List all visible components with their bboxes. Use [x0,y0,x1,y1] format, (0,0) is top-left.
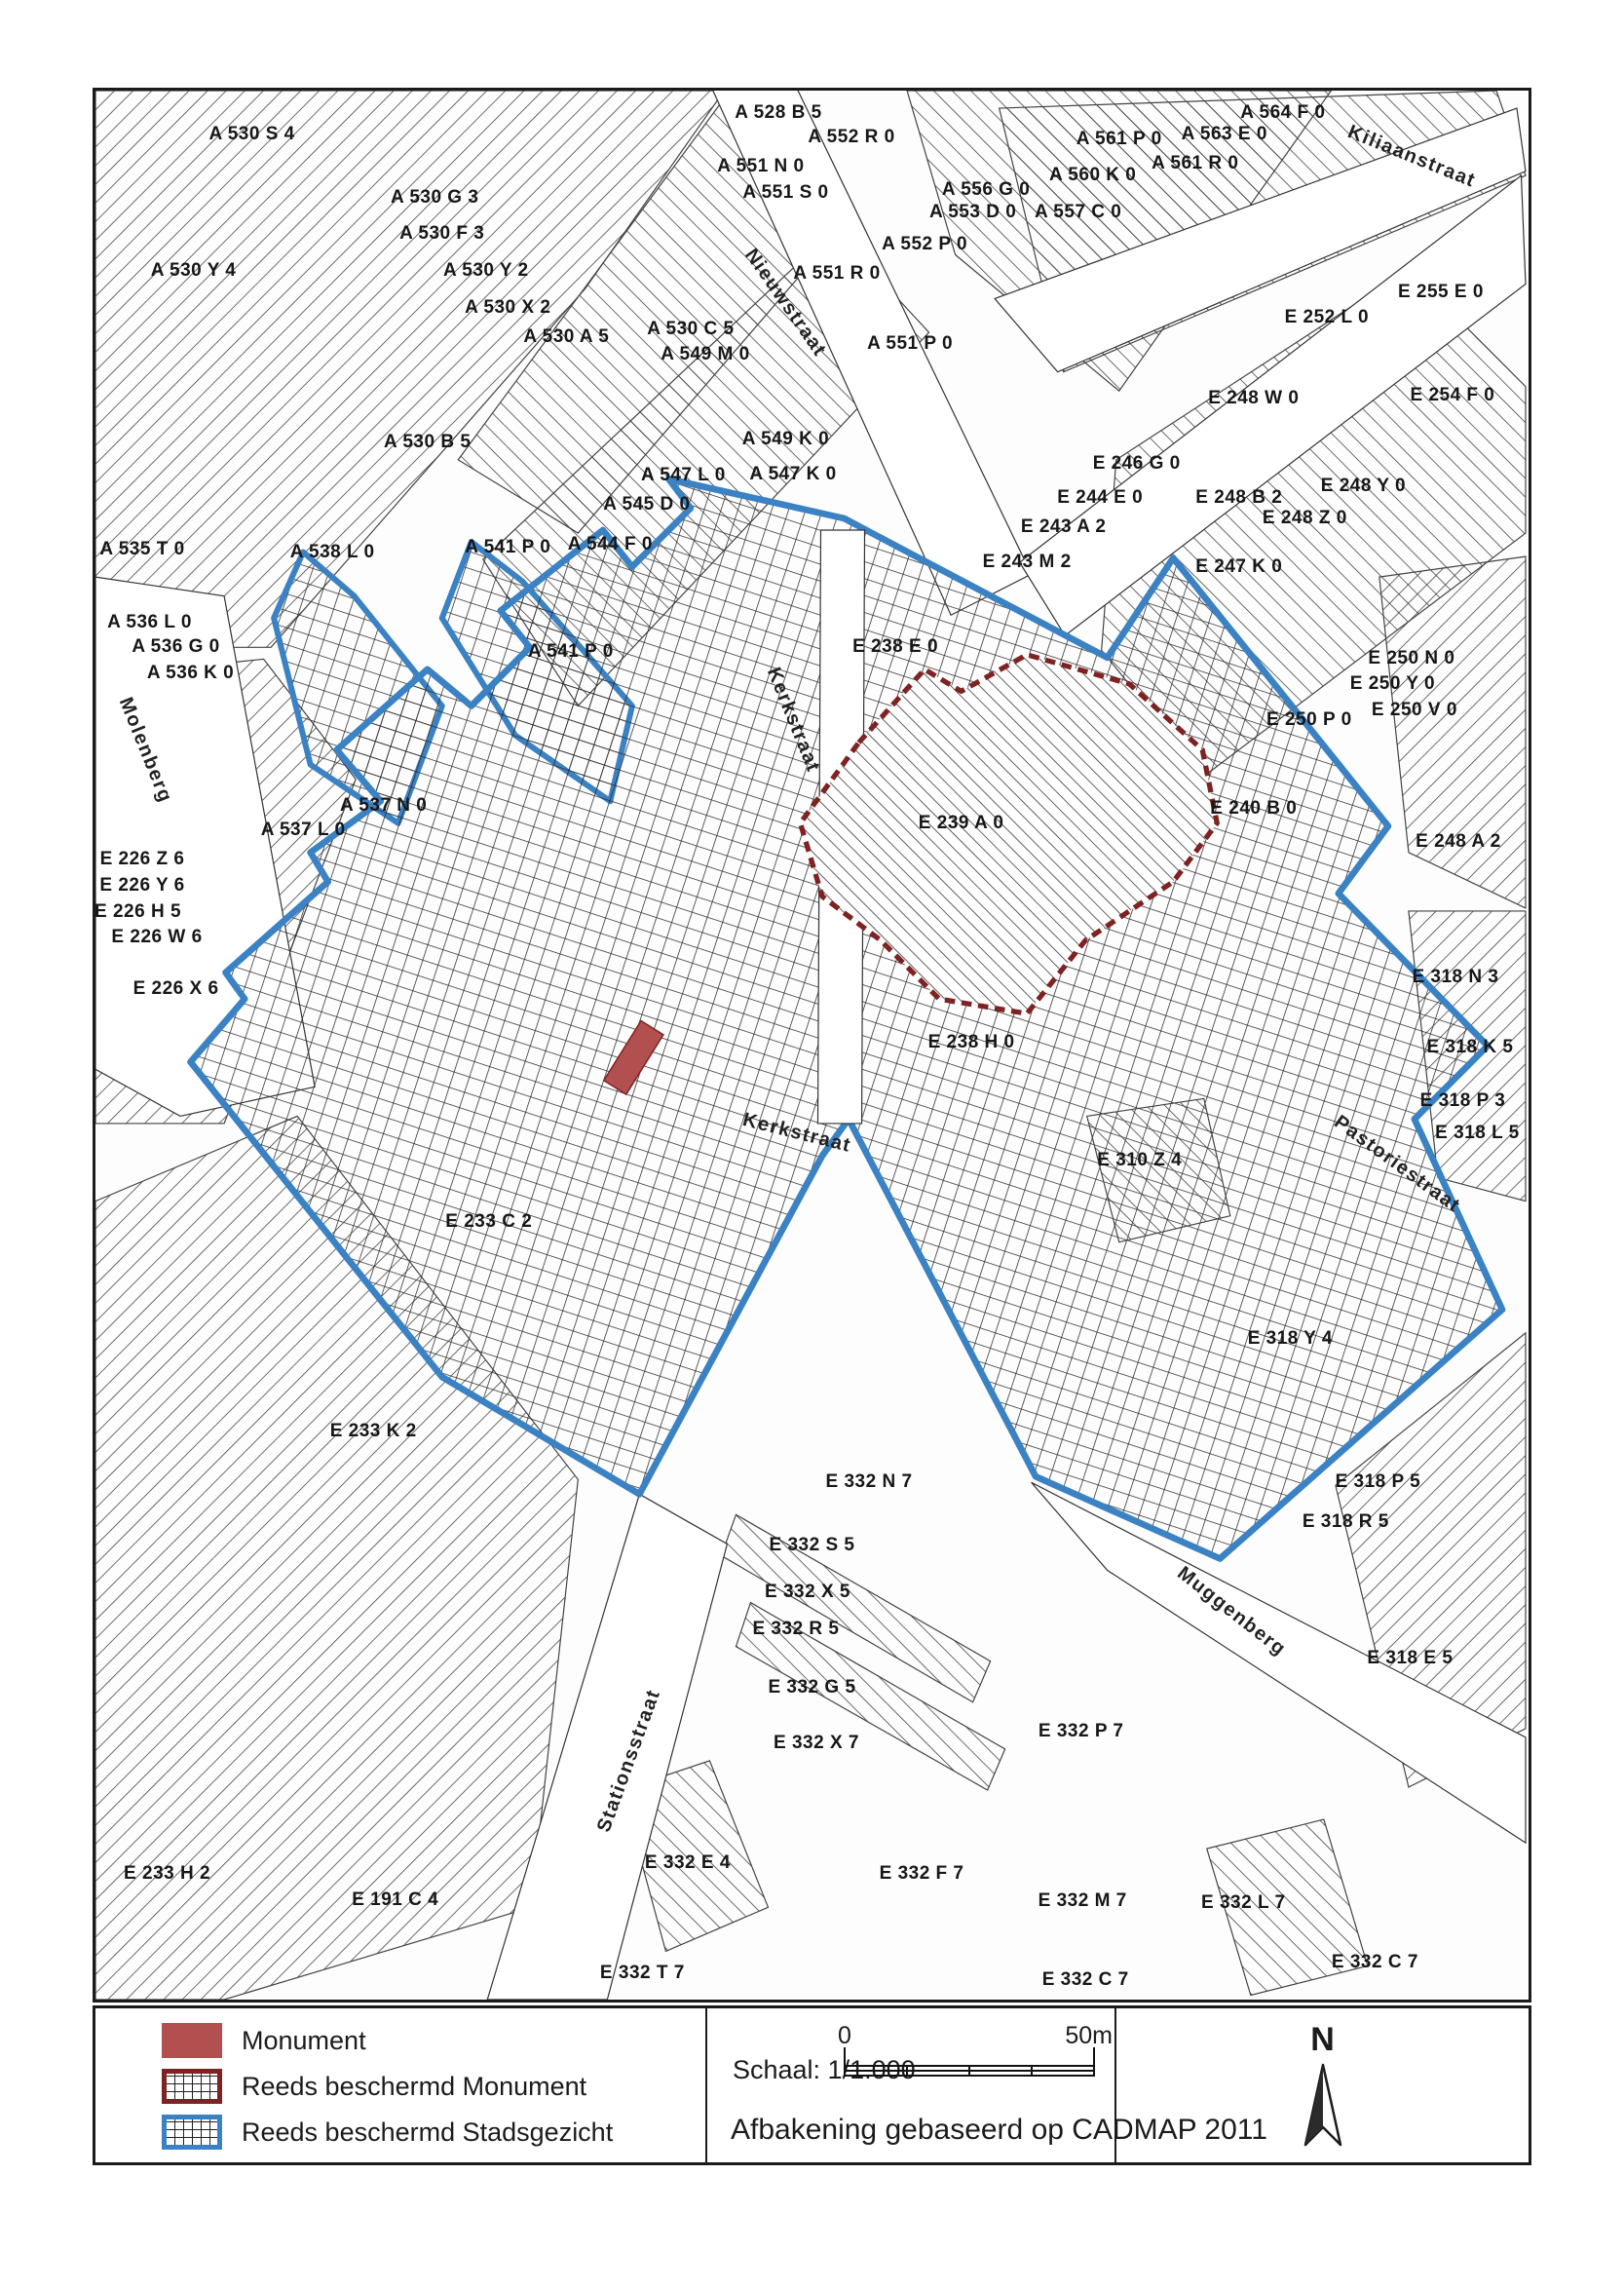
parcel-label: A 536 L 0 [107,612,192,633]
parcel-label: E 233 C 2 [445,1211,532,1233]
parcel-label: E 226 H 5 [94,901,181,923]
parcel-label: E 332 T 7 [600,1963,685,1984]
parcel-label: E 246 G 0 [1093,453,1181,475]
parcel-label: E 226 W 6 [111,927,202,948]
parcel-label: A 541 P 0 [528,641,614,663]
parcel-label: E 332 X 5 [765,1582,850,1603]
parcel-label: A 547 K 0 [749,464,836,485]
parcel-label: E 254 F 0 [1410,385,1494,406]
parcel-label: E 332 C 7 [1332,1952,1418,1973]
legend-item-protected-cityscape: Reeds beschermd Stadsgezicht [162,2114,705,2151]
parcel-label: E 233 K 2 [330,1421,417,1442]
parcel-label: A 557 C 0 [1035,202,1121,223]
parcel-label: E 318 R 5 [1303,1511,1389,1533]
parcel-label: A 551 P 0 [867,333,953,355]
parcel-label: E 248 W 0 [1208,388,1299,409]
parcel-label: A 551 N 0 [717,156,804,177]
parcel-label: E 243 A 2 [1021,516,1107,538]
parcel-label: E 250 P 0 [1266,709,1352,731]
parcel-label: E 332 E 4 [645,1852,731,1874]
parcel-label: E 239 A 0 [919,813,1004,834]
scale-tick-left [844,2047,846,2065]
parcel-label: A 530 A 5 [523,326,609,348]
parcel-label: E 233 H 2 [124,1863,210,1885]
street-label: Molenberg [114,694,176,806]
parcel-label: A 536 G 0 [132,636,219,658]
parcel-label: E 252 L 0 [1285,307,1370,328]
scale-bar-end: 50m [1065,2022,1113,2050]
north-arrow: N [1296,2021,1350,2151]
parcel-label: E 310 Z 4 [1097,1150,1182,1171]
parcel-label: E 332 R 5 [752,1619,839,1640]
parcel-label: E 243 M 2 [983,552,1072,573]
parcel-label: A 528 B 5 [735,102,821,124]
parcel-label: A 553 D 0 [929,202,1016,223]
parcel-label: E 238 H 0 [928,1032,1015,1053]
parcel-label: E 318 E 5 [1367,1648,1453,1669]
scale-bar-start: 0 [838,2022,851,2050]
legend-item-label: Reeds beschermd Stadsgezicht [242,2117,613,2148]
parcel-label: A 563 E 0 [1182,124,1267,145]
parcel-label: E 248 Z 0 [1263,508,1347,529]
parcel-label: E 244 E 0 [1057,487,1143,509]
street-label: Kiliaanstraat [1344,121,1479,193]
parcel-label: E 255 E 0 [1398,282,1484,303]
parcel-label: A 552 R 0 [808,127,894,148]
parcel-label: A 530 S 4 [208,124,294,145]
scale-bar-segments [844,2065,1095,2077]
north-arrow-icon [1296,2061,1350,2151]
parcel-label: E 332 S 5 [770,1535,855,1556]
parcel-label: A 552 P 0 [882,234,967,255]
parcel-label: A 530 Y 2 [443,260,529,282]
parcel-label: E 332 C 7 [1042,1969,1129,1991]
parcel-label: A 530 Y 4 [151,260,237,282]
legend-item-protected-monument: Reeds beschermd Monument [162,2068,705,2105]
parcel-label: A 556 G 0 [942,179,1030,201]
parcel-label: A 561 P 0 [1076,129,1162,150]
parcel-label: A 541 P 0 [465,537,550,558]
legend-item-monument: Monument [162,2022,705,2059]
parcel-label: A 549 K 0 [742,429,829,450]
parcel-label: E 318 P 3 [1420,1090,1506,1112]
legend-key: Monument Reeds beschermd Monument Reeds … [95,2008,707,2162]
parcel-label: A 549 M 0 [661,344,749,365]
parcel-label: A 537 N 0 [340,795,427,817]
parcel-label: A 530 B 5 [384,432,471,453]
cadastral-map-page: A 530 S 4A 528 B 5A 552 R 0A 564 F 0A 56… [0,0,1624,2289]
parcel-label: E 250 N 0 [1368,648,1454,669]
street-label: Stationsstraat [593,1686,665,1835]
parcel-label: E 318 K 5 [1426,1037,1513,1058]
parcel-label: A 536 K 0 [147,663,234,684]
parcel-label: E 226 Y 6 [99,875,184,897]
scale-section: Schaal: 1/1.000 0 50m Afbakening gebasee… [707,2008,1116,2162]
parcel-label: E 248 A 2 [1416,831,1501,853]
parcel-label: E 226 Z 6 [100,849,185,870]
protected-monument-swatch [162,2069,222,2104]
parcel-label: E 318 Y 4 [1248,1328,1333,1350]
parcel-label: E 226 X 6 [133,978,219,1000]
parcel-label: A 535 T 0 [99,539,184,560]
parcel-label: A 538 L 0 [290,542,375,563]
parcel-label: A 530 G 3 [391,187,478,209]
parcel-label: A 530 X 2 [465,297,550,319]
parcel-label: E 318 P 5 [1336,1471,1421,1493]
parcel-label: E 248 B 2 [1195,487,1282,509]
parcel-label: E 250 Y 0 [1350,673,1435,695]
parcel-label: A 545 D 0 [603,494,690,515]
parcel-label: A 547 L 0 [641,465,726,486]
parcel-label: E 248 Y 0 [1321,476,1406,497]
legend-item-label: Reeds beschermd Monument [242,2072,586,2102]
parcel-label: E 247 K 0 [1195,556,1282,578]
map-labels-layer: A 530 S 4A 528 B 5A 552 R 0A 564 F 0A 56… [95,91,1529,2000]
parcel-label: E 191 C 4 [352,1889,438,1911]
scale-tick-right [1093,2047,1095,2065]
parcel-label: E 318 L 5 [1435,1123,1520,1144]
parcel-label: E 332 X 7 [774,1733,859,1754]
parcel-label: E 318 N 3 [1412,967,1498,988]
north-label: N [1310,2021,1335,2059]
parcel-label: E 238 E 0 [852,636,938,658]
north-arrow-section: N [1116,2008,1529,2162]
parcel-label: A 544 F 0 [568,534,653,555]
parcel-label: E 332 M 7 [1039,1890,1127,1912]
parcel-label: A 530 F 3 [399,223,484,245]
street-label: Kerkstraat [740,1110,853,1159]
parcel-label: A 560 K 0 [1049,165,1136,186]
parcel-label: A 537 L 0 [261,820,346,841]
parcel-label: A 561 R 0 [1152,153,1238,174]
parcel-label: E 332 L 7 [1201,1892,1286,1914]
parcel-label: E 332 P 7 [1039,1721,1124,1742]
parcel-label: A 551 S 0 [742,182,828,204]
monument-swatch [162,2023,222,2058]
parcel-label: E 332 G 5 [768,1677,855,1698]
parcel-label: A 564 F 0 [1240,102,1325,124]
parcel-label: E 332 F 7 [880,1863,964,1885]
street-label: Kerkstraat [762,665,824,776]
parcel-label: A 530 C 5 [647,319,734,340]
legend-panel: Monument Reeds beschermd Monument Reeds … [93,2005,1531,2165]
legend-item-label: Monument [242,2026,366,2056]
map-canvas: A 530 S 4A 528 B 5A 552 R 0A 564 F 0A 56… [93,88,1531,2003]
parcel-label: E 250 V 0 [1372,700,1457,721]
parcel-label: E 332 N 7 [826,1471,913,1493]
parcel-label: A 551 R 0 [793,263,880,285]
protected-cityscape-swatch [162,2115,222,2150]
parcel-label: E 240 B 0 [1210,798,1297,820]
street-label: Muggenberg [1173,1562,1291,1660]
